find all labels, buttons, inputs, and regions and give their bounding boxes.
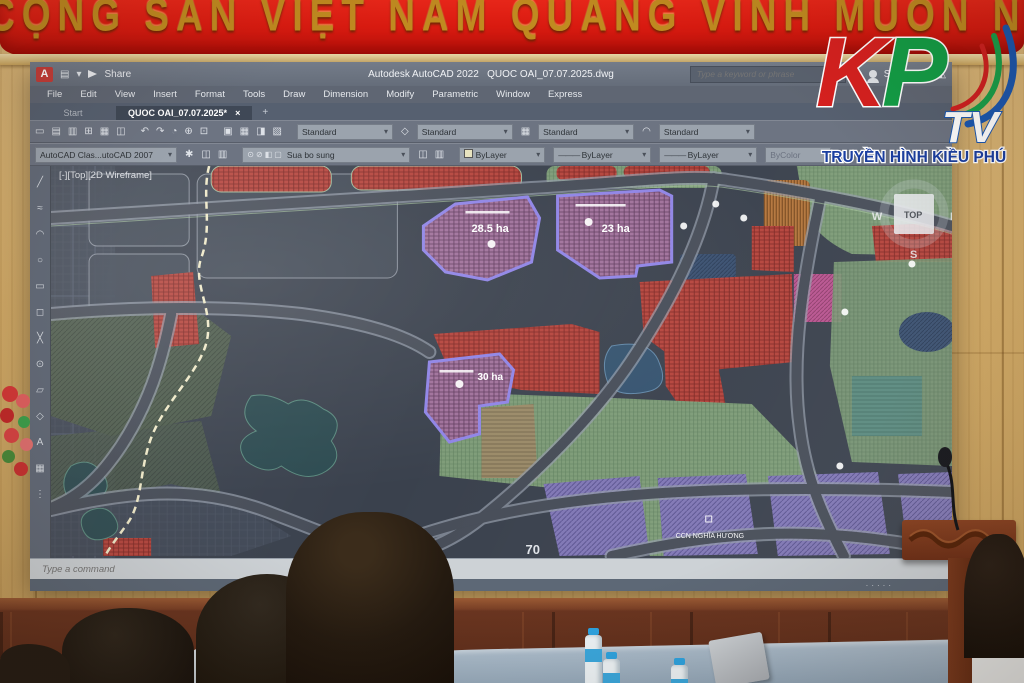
projection-screen: A ▤ ▾ Share Autodesk AutoCAD 2022 QUOC O… <box>30 62 952 586</box>
menu-view[interactable]: View <box>106 89 144 100</box>
menu-parametric[interactable]: Parametric <box>423 89 487 100</box>
banner-text: CỘNG SẢN VIỆT NAM QUANG VINH MUÔN NĂM <box>0 0 998 41</box>
wall-seam <box>952 352 1024 354</box>
mleader-style-dropdown[interactable]: Standard▾ <box>659 124 755 140</box>
workspace-dropdown[interactable]: AutoCAD Clas...utoCAD 2007▾ <box>35 147 177 163</box>
viewcube-east[interactable]: E <box>950 211 952 223</box>
water-bottle <box>584 628 603 662</box>
tab-active-document[interactable]: QUOC OAI_07.07.2025*× <box>116 106 252 120</box>
box-tool-icon[interactable]: ◻ <box>36 300 44 326</box>
menu-tools[interactable]: Tools <box>234 89 274 100</box>
tab-start[interactable]: Start <box>30 106 116 120</box>
text-style-dropdown[interactable]: Standard▾ <box>297 124 393 140</box>
photo-scene: CỘNG SẢN VIỆT NAM QUANG VINH MUÔN NĂM A … <box>0 0 1024 683</box>
file-tabbar: Start QUOC OAI_07.07.2025*× + <box>30 103 952 120</box>
microphone <box>928 444 980 537</box>
more-tools-icon[interactable]: ⋮ <box>35 482 45 508</box>
alert-icon[interactable]: ◭ <box>938 69 946 80</box>
drawing-canvas[interactable]: 28.5 ha 23 ha 30 ha <box>51 166 952 558</box>
drawing-number: 70 <box>526 542 540 557</box>
status-bar: ····· <box>30 579 952 591</box>
window-title: Autodesk AutoCAD 2022 QUOC OAI_07.07.202… <box>368 69 614 80</box>
menu-modify[interactable]: Modify <box>377 89 423 100</box>
menu-file[interactable]: File <box>38 89 71 100</box>
arc-tool-icon[interactable]: ◠ <box>36 222 45 248</box>
table-ops-icons[interactable]: ▣▦◨▧ <box>223 126 289 137</box>
mleader-style-icon[interactable]: ◠ <box>642 126 651 137</box>
menu-express[interactable]: Express <box>539 89 591 100</box>
search-input[interactable] <box>695 68 819 80</box>
audience-head <box>286 512 454 683</box>
hatch-tool-icon[interactable]: ╳ <box>37 326 43 352</box>
viewcube-south[interactable]: S <box>910 249 917 261</box>
tab-add-icon[interactable]: + <box>252 105 278 120</box>
save-icon[interactable]: ▤ <box>60 69 69 80</box>
edit-ops-icons[interactable]: ↶↷◔⊕⊡ <box>141 126 216 137</box>
dim-style-icon[interactable]: ◇ <box>401 126 409 137</box>
laptop <box>708 632 770 683</box>
menu-dimension[interactable]: Dimension <box>314 89 377 100</box>
parcel1-label: 28.5 ha <box>471 223 509 235</box>
water-bottle <box>602 652 621 683</box>
toolbar-layers: AutoCAD Clas...utoCAD 2007▾ ✱ ◫▥ ⊙⊘◧▢Sua… <box>30 143 952 166</box>
share-label[interactable]: Share <box>104 69 131 80</box>
autocad-app-icon[interactable]: A <box>36 67 53 82</box>
layer-extra-icons[interactable]: ◫▥ <box>418 149 451 160</box>
rectangle-tool-icon[interactable]: ▭ <box>35 274 44 300</box>
dim-style-dropdown[interactable]: Standard▾ <box>417 124 513 140</box>
viewport-label[interactable]: [-][Top][2D Wireframe] <box>59 170 152 181</box>
titlebar: A ▤ ▾ Share Autodesk AutoCAD 2022 QUOC O… <box>30 62 952 86</box>
menubar: File Edit View Insert Format Tools Draw … <box>30 86 952 103</box>
menu-edit[interactable]: Edit <box>71 89 105 100</box>
file-ops-icons[interactable]: ▭▤▥⊞▦◫ <box>35 126 133 137</box>
water-bottle <box>670 658 689 683</box>
command-bar[interactable] <box>30 558 952 579</box>
menu-draw[interactable]: Draw <box>274 89 314 100</box>
menu-format[interactable]: Format <box>186 89 234 100</box>
table-style-icon[interactable]: ▦ <box>521 126 530 137</box>
flower-decoration <box>0 382 42 484</box>
menu-window[interactable]: Window <box>487 89 539 100</box>
zone-label: CCN NGHĨA HƯƠNG <box>676 531 744 540</box>
circle-tool-icon[interactable]: ○ <box>37 248 43 274</box>
audience-head <box>62 608 194 683</box>
polyline-tool-icon[interactable]: ≈ <box>37 196 43 222</box>
layer-dropdown[interactable]: ⊙⊘◧▢Sua bo sung ▾ <box>242 147 410 163</box>
banner: CỘNG SẢN VIỆT NAM QUANG VINH MUÔN NĂM <box>0 0 1024 56</box>
donut-tool-icon[interactable]: ⊙ <box>36 352 44 378</box>
user-icon[interactable] <box>869 70 877 78</box>
parcel3-label: 30 ha <box>477 372 503 383</box>
menu-insert[interactable]: Insert <box>144 89 186 100</box>
table-style-dropdown[interactable]: Standard▾ <box>538 124 634 140</box>
toolbar-standard: ▭▤▥⊞▦◫ ↶↷◔⊕⊡ ▣▦◨▧ Standard▾ ◇ Standard▾ … <box>30 120 952 143</box>
layer-state-icons: ⊙⊘◧▢ <box>247 150 284 159</box>
tab-close-icon[interactable]: × <box>235 108 240 118</box>
cart-icon[interactable]: ▤ <box>922 69 931 80</box>
presenter-head <box>964 534 1024 658</box>
viewcube-top[interactable]: TOP <box>904 210 922 220</box>
gear-icon[interactable]: ✱ <box>185 149 193 160</box>
search-icon[interactable] <box>853 70 862 79</box>
sign-in-button[interactable]: Sign In <box>884 69 915 80</box>
status-dots: ····· <box>866 581 894 590</box>
viewcube-west[interactable]: W <box>872 211 883 223</box>
layer-tool-icons[interactable]: ◫▥ <box>201 149 234 160</box>
lineweight-dropdown[interactable]: ——— ByLayer▾ <box>659 147 757 163</box>
caret-icon[interactable]: ▾ <box>76 69 81 80</box>
line-tool-icon[interactable]: ╱ <box>37 170 43 196</box>
color-dropdown[interactable]: ByLayer▾ <box>459 147 545 163</box>
drawing-viewport[interactable]: [-][Top][2D Wireframe] <box>51 166 952 558</box>
search-box[interactable] <box>690 66 846 83</box>
linetype-dropdown[interactable]: ——— ByLayer▾ <box>553 147 651 163</box>
parcel2-label: 23 ha <box>602 223 631 235</box>
draw-tool-palette: ╱ ≈ ◠ ○ ▭ ◻ ╳ ⊙ ▱ ◇ A ▦ ⋮ <box>30 166 51 558</box>
plotstyle-dropdown[interactable]: ByColor <box>765 147 831 163</box>
share-icon[interactable] <box>88 70 97 78</box>
